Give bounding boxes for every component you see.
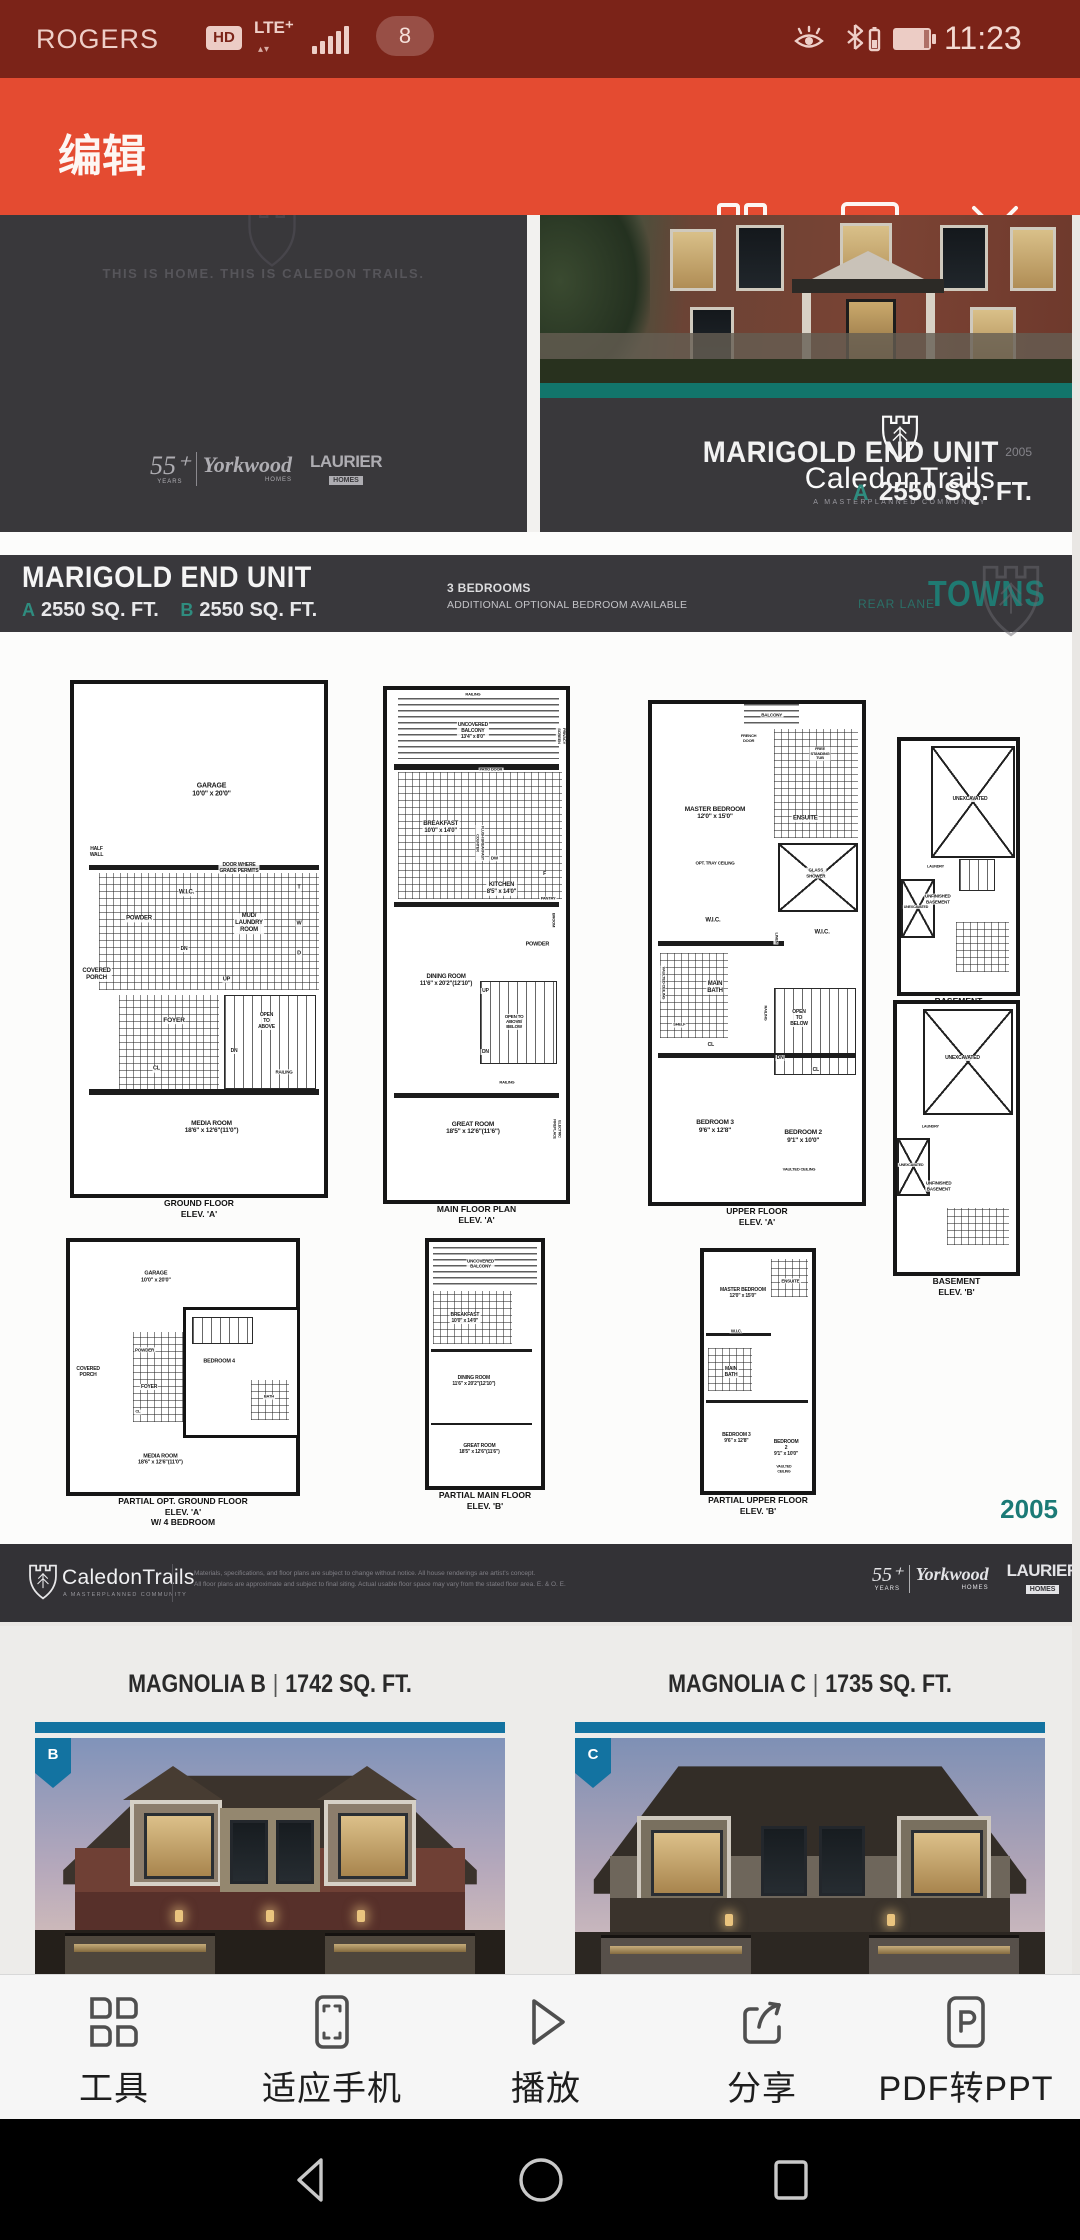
footer-yorkwood-years-sub: YEARS [872, 1586, 903, 1592]
plan-room-label: MEDIA ROOM 18'6" x 12'6"(11'0") [184, 1120, 240, 1136]
footer-caledon-name: CaledonTrails [62, 1566, 195, 1590]
cover-builder-logos: 55⁺ YEARS Yorkwood HOMES LAURIER HOMES [150, 452, 382, 486]
plan-room-label: BEDROOM 3 9'6" x 12'8" [695, 1120, 735, 1136]
accent-bar [575, 1722, 1045, 1733]
footer-yorkwood-name: Yorkwood [916, 1564, 989, 1584]
plan-room-label: UNEXCAVATED [903, 905, 929, 909]
teal-stripe [540, 383, 1072, 398]
plan-room-label: GARAGE 10'0" x 20'0" [140, 1270, 172, 1283]
plan-room-label: W.I.C. [730, 1328, 743, 1333]
plan-room-label: POWDER [134, 1347, 155, 1352]
plan-caption: GROUND FLOOR ELEV. 'A' [79, 1198, 319, 1219]
plan-room-label: KITCHEN 8'5" x 14'0" [486, 882, 518, 896]
page-gutter [527, 215, 540, 532]
plan-room-label: ENSUITE [780, 1278, 800, 1283]
plan-zone-solid [658, 941, 784, 946]
magnolia-c-sqft: 1735 SQ. FT. [825, 1670, 952, 1698]
footer-builder-logos: 55⁺ YEARS Yorkwood HOMES LAURIER HOMES [872, 1562, 1079, 1595]
plan-room-label: ENSUITE [792, 815, 819, 822]
plan-room-label: MAIN BATH [706, 981, 723, 995]
shield-watermark-icon [244, 215, 300, 269]
share-button[interactable]: 分享 [662, 1993, 862, 2110]
plan-caption: PARTIAL UPPER FLOOR ELEV. 'B' [638, 1495, 878, 1516]
plan-room-label: LAUNDRY [921, 1125, 940, 1130]
porch-roof [792, 279, 944, 293]
porch-light [266, 1910, 274, 1922]
plan-zone-solid [89, 865, 319, 870]
magnolia-c-photo: C [575, 1738, 1045, 1974]
plan-room-label: W.I.C. [814, 929, 831, 936]
yorkwood-name: Yorkwood [203, 452, 292, 477]
plan-room-label: RAILING [498, 1080, 515, 1085]
plan-room-label: DOOR WHERE GRADE PERMITS [218, 862, 259, 874]
plan-zone-solid [394, 1093, 559, 1098]
porch-light [357, 1910, 365, 1922]
plan-room-label: BATH [263, 1395, 275, 1400]
plan-room-label: VAULTED CEILING [660, 966, 665, 1001]
stone-base [540, 333, 1072, 361]
plan-room-label: UNEXCAVATED [898, 1163, 924, 1167]
floorplan-basement-a: UNEXCAVATEDUNEXCAVATEDLAUNDRYUNFINISHED … [897, 737, 1020, 996]
plan-zone-grid [956, 922, 1009, 972]
plan-caption: MAIN FLOOR PLAN ELEV. 'A' [357, 1204, 597, 1225]
fit-phone-label: 适应手机 [232, 2061, 432, 2110]
hd-badge: HD [206, 26, 242, 50]
floorplan-partial-opt-ground: GARAGE 10'0" x 20'0"POWDERCOVERED PORCHF… [66, 1238, 300, 1496]
plan-room-label: GARAGE 10'0" x 20'0" [191, 783, 232, 800]
heading-divider: | [806, 1670, 825, 1698]
plan-zone-solid [431, 1349, 532, 1351]
plan-room-label: D [296, 951, 302, 958]
laurier-homes: HOMES [329, 476, 363, 485]
plan-room-label: POWDER [525, 942, 551, 949]
footer-yorkwood-homes: HOMES [916, 1585, 989, 1591]
footer-laurier-logo: LAURIER HOMES [1007, 1562, 1079, 1595]
plan-room-label: MASTER BEDROOM 12'0" x 15'0" [719, 1287, 767, 1299]
footer-yorkwood-years: 55⁺ [872, 1564, 903, 1586]
plan-room-label: BEDROOM 3 9'6" x 12'8" [721, 1432, 751, 1444]
plan-room-label: UNEXCAVATED [952, 796, 989, 802]
plan-zone-grid [133, 1332, 187, 1422]
magnolia-b-photo: B [35, 1738, 505, 1974]
yorkwood-years: 55⁺ [150, 451, 190, 480]
recents-icon[interactable] [766, 2155, 816, 2205]
share-icon [733, 1993, 791, 2051]
porch-band [610, 1898, 1010, 1934]
tools-grid-icon [85, 1993, 143, 2051]
plan-caption: PARTIAL OPT. GROUND FLOOR ELEV. 'A' W/ 4… [63, 1496, 303, 1528]
model-code: 2005 [1005, 445, 1032, 459]
plan-zone-grid [947, 1208, 1009, 1246]
plan-room-label: UP [481, 988, 490, 994]
footer-divider [172, 1564, 173, 1602]
plan-room-label: VAULTED CEILING [782, 1167, 817, 1172]
heading-divider: | [266, 1670, 285, 1698]
plan-caption: BASEMENT ELEV. 'B' [837, 1276, 1077, 1297]
plan-room-label: DINING ROOM 11'6" x 20'2"(12'10") [419, 974, 473, 988]
footer-disclaimer: Materials, specifications, and floor pla… [194, 1568, 594, 1590]
plan-room-label: HALF WALL [89, 846, 104, 858]
plan-zone-grid [119, 995, 219, 1092]
plan-room-label: DW [490, 856, 499, 861]
cover-tagline: THIS IS HOME. THIS IS CALEDON TRAILS. [0, 266, 527, 281]
plan-room-label: PATIO DOOR [478, 767, 503, 772]
footer-shield-icon [28, 1562, 58, 1602]
plan-zone-solid [706, 1400, 808, 1402]
plan-room-label: FLUSH BREAKFAST COUNTER [476, 825, 485, 861]
garage-band [35, 1930, 505, 1974]
laurier-name: LAURIER [310, 453, 382, 470]
unit-b-ribbon: B [35, 1738, 71, 1788]
unit-sqft: 2550 SQ. FT. [879, 476, 1032, 506]
magnolia-page: MAGNOLIA B|1742 SQ. FT. B [0, 1626, 1072, 1974]
hedge [540, 359, 1072, 383]
plan-room-label: OPT. TRAY CEILING [694, 861, 735, 866]
unit-letter: A [853, 480, 869, 505]
plan-room-label: F [542, 871, 547, 877]
plan-room-label: OPEN TO ABOVE [257, 1012, 276, 1030]
magnolia-b-heading: MAGNOLIA B|1742 SQ. FT. [35, 1670, 505, 1699]
plan-room-label: MUD/ LAUNDRY ROOM [234, 913, 264, 935]
porch-light [725, 1914, 733, 1926]
plan-room-label: OPEN TO ABOVE/ BELOW [504, 1013, 525, 1029]
plan-room-label: W [296, 920, 303, 927]
plan-room-label: UNCOVERED BALCONY 13'4" x 8'0" [457, 722, 489, 740]
tools-button[interactable]: 工具 [14, 1993, 214, 2110]
bluetooth-battery-icon [842, 22, 884, 56]
plan-zone-solid [658, 1053, 855, 1058]
status-time: 11:23 [944, 20, 1022, 57]
page-title: 编辑 [58, 120, 146, 184]
porch-light [887, 1914, 895, 1926]
network-type-label: LTE⁺ [254, 18, 294, 38]
carrier-label: ROGERS [36, 24, 159, 55]
plan-room-label: DN [481, 1049, 490, 1055]
fit-phone-button[interactable]: 适应手机 [232, 1993, 432, 2110]
signal-strength-icon [312, 26, 356, 54]
disclaimer-line1: Materials, specifications, and floor pla… [194, 1568, 594, 1579]
pdf-to-ppt-button[interactable]: PDF转PPT [866, 1993, 1066, 2110]
home-icon[interactable] [516, 2155, 566, 2205]
plan-room-label: ELECTRIC FIREPLACE [553, 1118, 562, 1140]
plan-room-label: PRIVACY SCREEN [556, 727, 566, 745]
play-label: 播放 [446, 2061, 646, 2110]
plan-room-label: UNFINISHED BASEMENT [924, 894, 952, 905]
plan-room-label: T [296, 885, 301, 892]
plan-room-label: FOYER [162, 1017, 185, 1025]
floorplans: GARAGE 10'0" x 20'0"HALF WALLDOOR WHERE … [0, 532, 1072, 1544]
battery-icon [893, 28, 931, 50]
plan-room-label: CL [134, 1410, 141, 1415]
plan-zone-xbox [923, 1009, 1013, 1115]
back-icon[interactable] [288, 2155, 338, 2205]
plan-room-label: DN [230, 1048, 239, 1054]
bottom-toolbar: 工具 适应手机 播放 [0, 1974, 1080, 2120]
plan-caption: PARTIAL MAIN FLOOR ELEV. 'B' [365, 1490, 605, 1511]
magnolia-c-heading: MAGNOLIA C|1735 SQ. FT. [575, 1670, 1045, 1699]
plan-caption: UPPER FLOOR ELEV. 'A' [637, 1206, 877, 1227]
plan-zone-stairs [192, 1317, 253, 1344]
android-nav-bar [0, 2119, 1080, 2240]
plan-zone-solid [394, 764, 559, 769]
plan-room-label: UP [222, 977, 231, 984]
laurier-logo: LAURIER HOMES [310, 453, 382, 486]
plan-room-label: BROOM [551, 911, 556, 927]
phone-screen: ROGERS HD LTE⁺ ▴▾ 8 11:23 编辑 [0, 0, 1080, 2240]
eye-comfort-icon [792, 24, 826, 54]
footer-caledon-tagline: A MASTERPLANNED COMMUNITY [63, 1592, 187, 1598]
document-viewport[interactable]: THIS IS HOME. THIS IS CALEDON TRAILS. 55… [0, 215, 1080, 1974]
plan-zone-grid [251, 1380, 289, 1420]
plan-room-label: RAILING [763, 1004, 768, 1021]
pdf-to-ppt-label: PDF转PPT [866, 2061, 1066, 2110]
plan-room-label: COVERED PORCH [75, 1366, 100, 1378]
garage-band [575, 1932, 1045, 1974]
plan-zone-xbox [931, 746, 1016, 858]
footer-laurier-homes: HOMES [1026, 1585, 1060, 1594]
plan-room-label: DN [776, 1055, 785, 1061]
tools-label: 工具 [14, 2061, 214, 2110]
bay-window [637, 1816, 731, 1904]
floorplan-partial-main-b: UNCOVERED BALCONYBREAKFAST 10'0" x 14'0"… [425, 1238, 545, 1490]
plan-room-label: DN [180, 946, 189, 952]
play-icon [517, 1993, 575, 2051]
magnolia-c-title: MAGNOLIA C [668, 1670, 806, 1698]
plan-room-label: BEDROOM 4 [202, 1359, 236, 1366]
cover-model-panel: CaledonTrails A MASTERPLANNED COMMUNITY … [540, 398, 1072, 532]
magnolia-b-title: MAGNOLIA B [128, 1670, 266, 1698]
plan-room-label: RAILING [274, 1069, 293, 1074]
pdf-to-ppt-icon [937, 1993, 995, 2051]
play-button[interactable]: 播放 [446, 1993, 646, 2110]
plan-room-label: UNEXCAVATED [944, 1055, 981, 1061]
plan-room-label: VAULTED CEILING [770, 1465, 798, 1474]
disclaimer-line2: All floor plans are approximate and subj… [194, 1579, 594, 1590]
plan-zone-solid [394, 902, 559, 907]
plan-zone-solid [706, 1333, 771, 1335]
model-title-block: MARIGOLD END UNIT2005 A2550 SQ. FT. [677, 436, 1032, 507]
plan-room-label: FOYER [140, 1384, 158, 1390]
plan-room-label: CL [812, 1067, 820, 1073]
plan-room-label: SHELF [672, 1023, 686, 1028]
floorplan-partial-upper-b: MASTER BEDROOM 12'0" x 15'0"ENSUITEW.I.C… [700, 1248, 816, 1495]
plan-room-label: POWDER [125, 915, 153, 922]
yorkwood-homes: HOMES [203, 477, 292, 483]
plan-room-label: FREE STANDING TUB [810, 747, 831, 761]
plan-room-label: BALCONY [760, 712, 783, 717]
plan-room-label: FRENCH DOOR [740, 734, 757, 744]
plan-room-label: MEDIA ROOM 18'6" x 12'6"(11'0") [137, 1453, 184, 1466]
plan-room-label: UNCOVERED BALCONY [466, 1259, 495, 1270]
notification-count-badge: 8 [376, 16, 434, 56]
share-label: 分享 [662, 2061, 862, 2110]
plan-room-label: BEDROOM 2 9'1" x 10'0" [773, 1439, 800, 1457]
floorplan-basement-b: UNEXCAVATEDUNEXCAVATEDLAUNDRYUNFINISHED … [893, 1000, 1020, 1276]
floorplan-page: MARIGOLD END UNIT A2550 SQ. FT. B2550 SQ… [0, 532, 1072, 1622]
bay-window [130, 1800, 222, 1886]
floorplan-main-floor: RAILINGUNCOVERED BALCONY 13'4" x 8'0"PRI… [383, 686, 570, 1204]
footer-laurier-name: LAURIER [1007, 1562, 1079, 1579]
plan-zone-solid [89, 1089, 319, 1094]
plan-room-label: BREAKFAST 10'0" x 14'0" [449, 1312, 480, 1324]
plan-room-label: MAIN BATH [724, 1366, 739, 1378]
plan-room-label: GREAT ROOM 18'5" x 12'6"(11'6") [445, 1121, 501, 1137]
porch-light [175, 1910, 183, 1922]
page-edge-strip [1072, 215, 1080, 1975]
magnolia-b-sqft: 1742 SQ. FT. [285, 1670, 412, 1698]
plan-room-label: LINEN [773, 932, 778, 945]
plan-room-label: GREAT ROOM 18'5" x 12'6"(11'6") [458, 1443, 500, 1455]
accent-bar [35, 1722, 505, 1733]
plan-zone-stairs [959, 859, 996, 891]
unit-c-ribbon: C [575, 1738, 611, 1788]
plan-room-label: CL [707, 1042, 715, 1048]
plan-room-label: BEDROOM 2 9'1" x 10'0" [783, 1129, 823, 1145]
siding-panel [220, 1808, 320, 1892]
bay-window [324, 1800, 416, 1886]
plan-room-label: MASTER BEDROOM 12'0" x 15'0" [684, 806, 746, 822]
porch-pediment [808, 251, 928, 281]
plan-room-label: OPEN TO BELOW [789, 1009, 809, 1027]
bay-window [897, 1816, 991, 1904]
app-header: 编辑 14 [0, 78, 1080, 215]
plan-zone-grid [660, 953, 727, 1038]
plan-zone-grid [99, 873, 319, 990]
plan-room-label: W.I.C. [704, 917, 721, 924]
model-title: MARIGOLD END UNIT [703, 436, 999, 470]
plan-room-label: BREAKFAST 10'0" x 14'0" [422, 821, 459, 835]
plan-zone-stairs [224, 995, 316, 1089]
plan-room-label: COVERED PORCH [81, 968, 111, 982]
plan-room-label: DINING ROOM 11'6" x 20'2"(12'10") [451, 1375, 496, 1387]
status-bar: ROGERS HD LTE⁺ ▴▾ 8 11:23 [0, 0, 1080, 78]
plan-room-label: PANTRY [540, 897, 557, 902]
plan-room-label: LAUNDRY [926, 864, 945, 869]
data-arrows-icon: ▴▾ [258, 44, 270, 55]
yorkwood-logo: 55⁺ YEARS Yorkwood HOMES [150, 452, 292, 486]
plan-zone-solid [431, 1423, 532, 1425]
plan-room-label: W.I.C. [178, 890, 195, 897]
plan-room-label: GLASS SHOWER [805, 868, 826, 879]
house-rendering-photo [540, 215, 1072, 383]
plan-code-label: 2005 [1000, 1494, 1058, 1525]
cover-left-panel: THIS IS HOME. THIS IS CALEDON TRAILS. 55… [0, 215, 527, 532]
plan-room-label: CL [152, 1066, 161, 1073]
floorplan-ground-floor: GARAGE 10'0" x 20'0"HALF WALLDOOR WHERE … [70, 680, 328, 1198]
floorplan-footer: CaledonTrails A MASTERPLANNED COMMUNITY … [0, 1544, 1072, 1622]
plan-room-label: UNFINISHED BASEMENT [925, 1181, 953, 1192]
footer-yorkwood-logo: 55⁺ YEARS Yorkwood HOMES [872, 1565, 989, 1593]
fit-phone-icon [303, 1993, 361, 2051]
floorplan-upper-floor: BALCONYFRENCH DOORMASTER BEDROOM 12'0" x… [648, 700, 866, 1206]
plan-room-label: RAILING [464, 693, 481, 698]
